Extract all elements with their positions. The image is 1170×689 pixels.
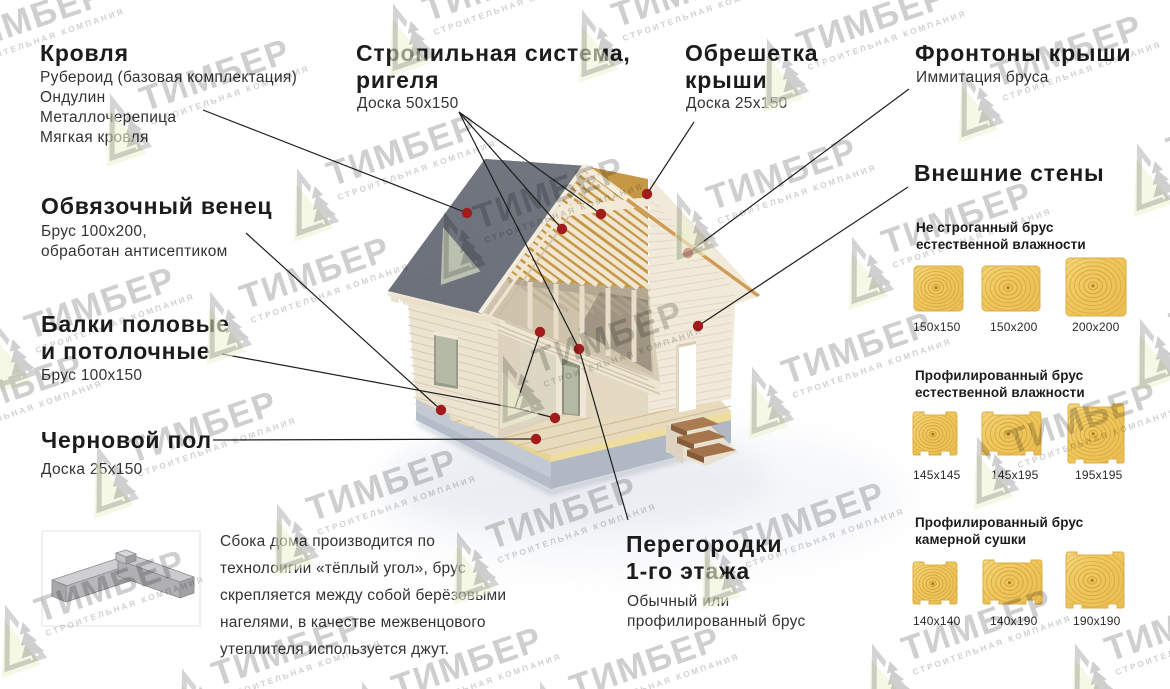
svg-text:ТИМБЕР: ТИМБЕР <box>565 619 726 689</box>
svg-text:ТИМБЕР: ТИМБЕР <box>1165 256 1170 344</box>
svg-text:ТИМБЕР: ТИМБЕР <box>1162 81 1170 169</box>
svg-text:ТИМБЕР: ТИМБЕР <box>387 619 548 689</box>
svg-text:ТИМБЕР: ТИМБЕР <box>792 0 953 64</box>
